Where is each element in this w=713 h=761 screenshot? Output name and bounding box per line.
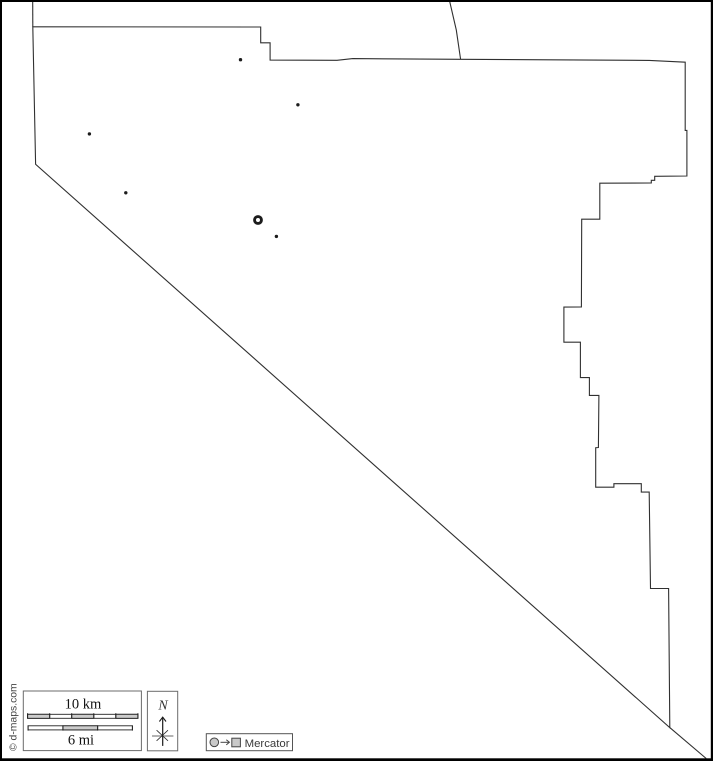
svg-text:Mercator: Mercator	[245, 738, 290, 750]
svg-text:10 km: 10 km	[65, 697, 102, 713]
svg-text:N: N	[157, 699, 168, 714]
svg-text:6 mi: 6 mi	[68, 732, 94, 748]
svg-text:© d-maps.com: © d-maps.com	[8, 683, 19, 751]
